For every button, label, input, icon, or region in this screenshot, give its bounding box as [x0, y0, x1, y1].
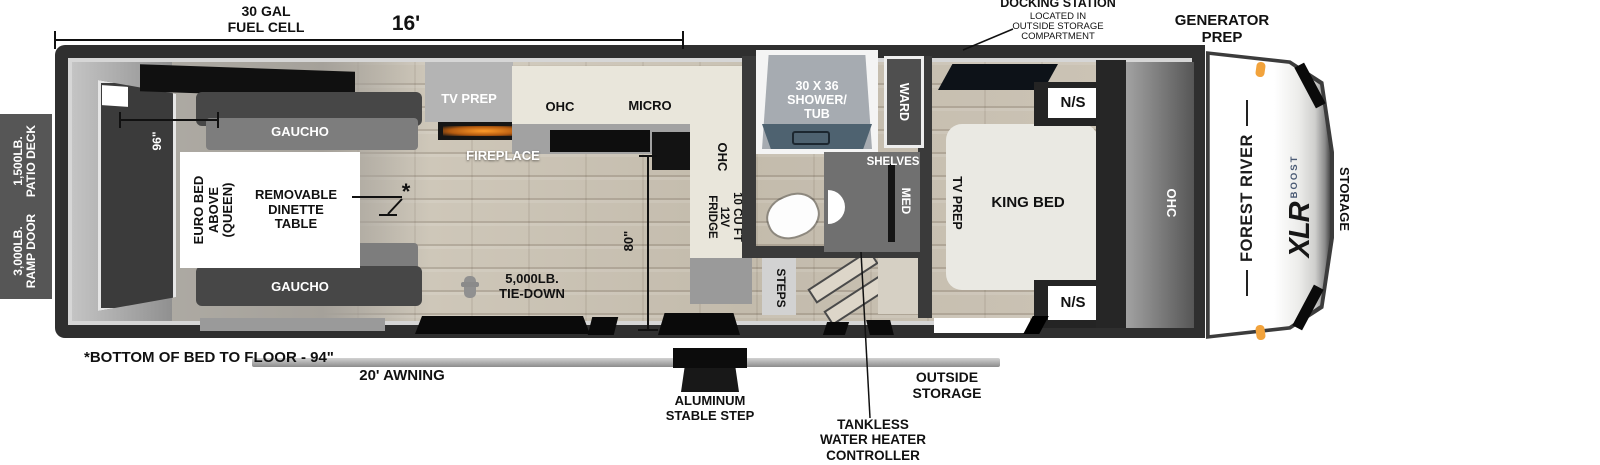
bedroom-bottom-window [934, 318, 1030, 333]
tie-down-label: 5,000LB. TIE-DOWN [482, 272, 582, 302]
docking-station-title: DOCKING STATION [985, 0, 1131, 10]
patio-deck-label: 1,500LB. PATIO DECK [10, 118, 40, 204]
fuel-cell-label: 30 GAL FUEL CELL [196, 4, 336, 36]
bedroom-tv-prep-label: TV PREP [949, 173, 965, 233]
logo-flourish [1246, 100, 1248, 126]
ramp-door-label: 3,000LB. RAMP DOOR [10, 208, 40, 294]
gaucho-bottom-label: GAUCHO [255, 279, 345, 295]
shower-tub-label: 30 X 36 SHOWER/ TUB [772, 80, 862, 120]
bath-wall-left [742, 56, 756, 252]
length-16ft-label: 16' [383, 12, 429, 36]
gaucho-top-label: GAUCHO [255, 124, 345, 140]
forest-river-logo: FOREST RIVER [1234, 86, 1260, 310]
fireplace-label: FIREPLACE [453, 148, 553, 164]
tie-down-icon [464, 276, 476, 298]
ward-label: WARD [897, 72, 911, 132]
entry-door-mark [658, 313, 740, 335]
ohc-side-label: OHC [714, 135, 730, 179]
tie-down-icon-bar [461, 282, 479, 287]
fridge-label: 10 CU FT 12V FRIDGE [701, 182, 747, 252]
bed-height-asterisk: * [396, 182, 416, 202]
model-text: XLR [1286, 202, 1315, 257]
euro-bed-label: EURO BED ABOVE (QUEEN) [190, 158, 238, 262]
ramp-window [102, 85, 128, 107]
fridge-box [652, 132, 690, 170]
micro-label: MICRO [610, 98, 690, 114]
garage-window [200, 318, 385, 331]
marker-light-icon [1255, 324, 1266, 340]
awning-label: 20' AWNING [342, 368, 462, 384]
steps-label: STEPS [773, 258, 787, 318]
outside-storage-label: OUTSIDE STORAGE [897, 370, 997, 402]
storage-label: STORAGE [1336, 157, 1352, 241]
ns-top-label: N/S [1048, 95, 1098, 111]
bed-to-floor-note: *BOTTOM OF BED TO FLOOR - 94" [84, 350, 384, 366]
tankless-controller-label: TANKLESS WATER HEATER CONTROLLER [798, 416, 948, 464]
stable-step-label: ALUMINUM STABLE STEP [650, 394, 770, 424]
ohc-kitchen-label: OHC [535, 99, 585, 115]
generator-prep-label: GENERATOR PREP [1162, 13, 1282, 47]
series-text: BOOST [1290, 155, 1301, 199]
bedroom-ohc-cabinet [1126, 62, 1194, 328]
kitchen-tv-prep-label: TV PREP [429, 91, 509, 107]
xlr-boost-logo: XLR BOOST [1279, 140, 1315, 272]
garage-width-96-label: 96" [150, 121, 166, 161]
stable-step-icon [673, 348, 747, 368]
stable-step-lower [681, 368, 739, 392]
pantry-block [690, 258, 752, 304]
med-cabinet-bar [888, 164, 895, 242]
brand-text: FOREST RIVER [1238, 134, 1256, 262]
med-label: MED [898, 179, 912, 223]
height-80-label: 80" [621, 221, 637, 261]
shelves-label: SHELVES [853, 155, 933, 169]
stair-landing [878, 258, 920, 314]
entry-door-mark-small [588, 317, 618, 335]
floorplan-canvas: 30 GAL FUEL CELL 16' DOCKING STATION LOC… [0, 0, 1600, 465]
steps-door-mark [823, 322, 849, 335]
ns-bottom-label: N/S [1048, 295, 1098, 311]
tub-drain [792, 131, 830, 145]
ramp-door-panel [98, 80, 176, 311]
docking-station-note: LOCATED IN OUTSIDE STORAGE COMPARTMENT [998, 10, 1118, 44]
removable-dinette-label: REMOVABLE DINETTE TABLE [246, 186, 346, 234]
bedroom-cabinet-dark [1096, 60, 1126, 328]
logo-flourish [1246, 270, 1248, 296]
kitchen-window [415, 316, 590, 334]
cooktop [550, 130, 650, 152]
king-bed-label: KING BED [978, 195, 1078, 211]
bedroom-ohc-label: OHC [1163, 181, 1179, 225]
steps-door-mark [866, 320, 894, 335]
